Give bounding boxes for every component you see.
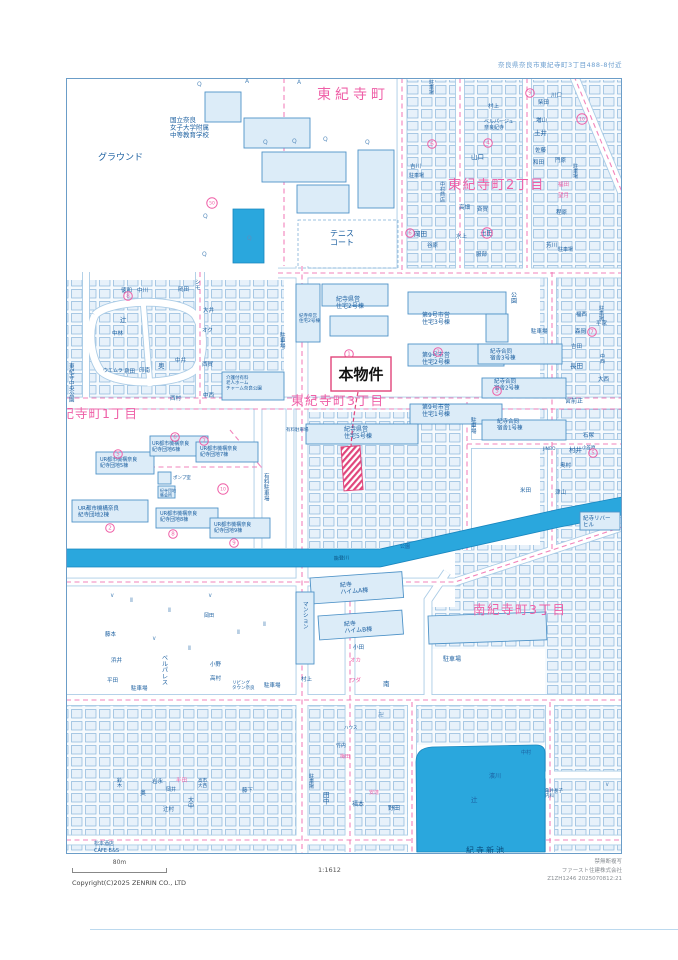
- map-label: 濱川: [489, 772, 501, 780]
- map-symbol: Q: [323, 136, 328, 143]
- map-label: 駐車場: [599, 305, 604, 322]
- map-label: 中村商店: [440, 181, 445, 203]
- map-label: 斉賀: [477, 205, 489, 213]
- map-label: 奥村: [560, 461, 572, 469]
- lot-number: 8: [171, 532, 175, 538]
- lot-number: 6: [430, 142, 434, 148]
- map-label: 柴田: [538, 98, 549, 106]
- map-label: 駐車場: [558, 246, 573, 253]
- map-label: 小野: [210, 660, 222, 668]
- housing-block: [412, 703, 545, 745]
- building: [486, 314, 508, 342]
- map-label: 岩永: [152, 777, 164, 785]
- lot-number: 9: [232, 541, 236, 547]
- map-label: 駐車場: [309, 773, 314, 790]
- housing-block: [545, 607, 622, 701]
- map-label: 半田: [176, 776, 187, 784]
- map-label: 駐車場: [443, 655, 461, 663]
- map-label: 竹内: [336, 742, 346, 749]
- map-label: 岡田: [178, 286, 189, 293]
- map-label: 土井: [534, 128, 548, 137]
- lot-number: 6: [173, 435, 177, 441]
- lot-number: 7: [202, 439, 206, 445]
- map-label: 駐車場: [131, 684, 148, 692]
- map-label: 岡田: [204, 613, 214, 619]
- map-label: 佐藤: [535, 146, 547, 154]
- map-label: 村井: [569, 445, 583, 454]
- map-label: 中林: [112, 329, 124, 337]
- scanned-map-page: 奈良県奈良市東紀寺町3丁目488-8付近 QAAQQQQQQQ∨∨∨∨ⅡⅡⅡⅡⅡ…: [0, 0, 678, 960]
- lot-number: 9: [528, 91, 532, 97]
- district-label: 東紀寺町: [317, 87, 389, 103]
- map-label: 中西: [600, 353, 605, 365]
- property-label: 本物件: [338, 366, 383, 384]
- map-symbol: Ⅱ: [188, 645, 191, 652]
- map-label: 水上: [456, 232, 468, 240]
- map-label: 西村: [170, 394, 182, 402]
- map-label: 駐車場: [531, 327, 548, 335]
- map-label: 長田: [570, 362, 583, 370]
- map-label: 南: [383, 679, 390, 688]
- map-label: 和田: [533, 158, 544, 166]
- map-label: 小田: [353, 643, 364, 651]
- map-label: ワダ: [350, 676, 362, 684]
- map-label: 辻村: [163, 805, 175, 813]
- map-label: 米田: [520, 486, 531, 494]
- map-symbol: 卍: [378, 712, 384, 719]
- map-label: 紀寺県営住宅5号棟: [344, 425, 372, 440]
- map-label: 岡井: [166, 786, 176, 793]
- building: [330, 316, 388, 336]
- map-label: 村上: [488, 102, 500, 110]
- map-label: 服部: [476, 250, 488, 258]
- map-label: 安達: [369, 789, 379, 796]
- lot-number: 8: [126, 294, 130, 300]
- map-label: 辻: [471, 795, 478, 804]
- lot-number: 3: [495, 389, 499, 395]
- map-symbol: ∨: [605, 781, 609, 788]
- map-label: ポンプ室: [173, 474, 191, 481]
- map-label: 野田: [388, 804, 400, 812]
- lot-number: 6: [408, 231, 412, 237]
- building: [205, 92, 241, 122]
- building: [296, 284, 320, 342]
- map-label: 梅田: [340, 753, 350, 760]
- district-label: 東紀寺町1丁目: [66, 406, 138, 421]
- map-label: 藤本: [105, 630, 117, 638]
- map-label: 松本酒店: [94, 840, 114, 847]
- lot-number: 7: [590, 330, 594, 336]
- zenrin-map-canvas: QAAQQQQQQQ∨∨∨∨ⅡⅡⅡⅡⅡ卍東紀寺町東紀寺町2丁目東紀寺町3丁目東紀…: [66, 78, 622, 854]
- map-symbol: Ⅱ: [263, 621, 266, 628]
- scale-bar-label: 80m: [113, 859, 126, 866]
- map-label: 第9号市営住宅3号棟: [422, 311, 450, 326]
- map-label: 西賀: [202, 360, 214, 368]
- map-label: 大西: [598, 375, 610, 383]
- property-site: [341, 446, 363, 491]
- map-label: マンション: [303, 601, 309, 630]
- map-label: 駐車場: [471, 416, 477, 435]
- map-symbol: ∨: [208, 592, 212, 599]
- lot-number: 11: [484, 231, 490, 237]
- map-symbol: ∨: [152, 635, 156, 642]
- map-symbol: Ⅱ: [237, 629, 240, 636]
- map-label: 有料駐車場: [264, 472, 270, 502]
- map-label: 藤下: [242, 786, 254, 794]
- scale-bar-rule: [72, 868, 167, 873]
- map-label: 大井: [203, 306, 215, 314]
- map-label: 駐車場: [280, 331, 286, 350]
- map-label: オク: [202, 327, 213, 334]
- map-symbol: Q: [263, 139, 268, 146]
- map-label: JINBO: [542, 446, 556, 452]
- map-label: シモ: [195, 280, 201, 292]
- map-symbol: Ⅱ: [168, 607, 171, 614]
- map-label: 奥: [140, 789, 146, 797]
- map-label: 高市大西: [198, 777, 207, 789]
- map-label: 紀寺県営住宅2号棟: [336, 295, 364, 310]
- map-symbol: Q: [247, 235, 252, 242]
- map-label: 平田: [107, 677, 118, 684]
- map-symbol: Q: [365, 139, 370, 146]
- map-scale-ratio: 1:1612: [318, 866, 341, 874]
- print-code: Z1ZH1246 2025070812:21: [547, 875, 622, 884]
- map-label: グラウンド: [98, 151, 143, 163]
- lot-number: 2: [108, 526, 112, 532]
- map-label: 福本: [352, 800, 364, 808]
- map-label: オカ: [350, 657, 361, 664]
- lot-number: 4: [486, 141, 490, 147]
- map-label: 駐車場: [573, 163, 578, 180]
- map-label: ベルパレス: [162, 655, 168, 686]
- map-content: QAAQQQQQQQ∨∨∨∨ⅡⅡⅡⅡⅡ卍東紀寺町東紀寺町2丁目東紀寺町3丁目東紀…: [66, 78, 622, 854]
- map-symbol: Q: [202, 251, 207, 258]
- lot-number: 5: [591, 451, 595, 457]
- scale-bar: 80m: [72, 860, 167, 873]
- map-frame: QAAQQQQQQQ∨∨∨∨ⅡⅡⅡⅡⅡ卍東紀寺町東紀寺町2丁目東紀寺町3丁目東紀…: [66, 78, 622, 854]
- scan-artifact-line: [90, 929, 678, 930]
- map-label: 岡田: [414, 230, 427, 238]
- lot-number: 10: [220, 487, 226, 493]
- map-label: 中西: [203, 391, 215, 399]
- map-symbol: Q: [203, 213, 208, 220]
- lot-number: 2: [436, 350, 440, 356]
- lot-number: 10: [579, 117, 585, 123]
- lot-number: 50: [209, 201, 215, 207]
- building: [262, 152, 346, 182]
- print-notice: 禁無断複写: [547, 858, 622, 867]
- district-label: 南紀寺町3丁目: [473, 602, 566, 617]
- building: [297, 185, 349, 213]
- map-label: 中井: [175, 356, 187, 364]
- map-label: テニスコート: [330, 229, 354, 247]
- building: [158, 472, 171, 484]
- map-label: 辻: [120, 315, 127, 324]
- print-company: ファースト住建株式会社: [547, 867, 622, 876]
- map-label: 村上: [301, 675, 313, 683]
- map-sheet-address: 奈良県奈良市東紀寺町3丁目488-8付近: [498, 59, 622, 69]
- map-label: 福田: [558, 180, 569, 188]
- map-label: 田中: [323, 791, 330, 806]
- map-label: 谷原: [427, 241, 439, 249]
- building: [482, 420, 566, 440]
- map-label: 駐車場: [264, 681, 281, 689]
- map-label: 望月: [558, 191, 569, 199]
- map-label: 鈴木: [117, 777, 122, 789]
- map-label: 大中: [188, 796, 194, 810]
- map-label: 津山: [555, 488, 566, 496]
- map-label: 奥: [158, 361, 165, 370]
- map-label: 増山: [536, 116, 547, 124]
- district-label: 東紀寺町3丁目: [291, 393, 384, 408]
- map-label: 中川: [137, 286, 148, 294]
- map-label: 程原: [556, 208, 568, 216]
- map-label: 能登川: [334, 554, 349, 562]
- map-label: 高村: [210, 674, 222, 682]
- map-label: 駐車場: [409, 172, 424, 179]
- map-symbol: Ⅱ: [130, 597, 133, 604]
- map-label: 公園: [511, 292, 517, 305]
- map-label: 泉田: [124, 367, 135, 375]
- map-label: 門原: [555, 157, 567, 164]
- map-label: 浜井: [111, 656, 123, 664]
- map-label: 駐車場: [429, 79, 434, 96]
- map-label: 山口: [471, 152, 484, 161]
- map-label: 有料駐車場: [286, 426, 309, 433]
- kidera-pond: [416, 745, 545, 852]
- map-label: 紀寺新池: [466, 845, 506, 854]
- building: [244, 118, 310, 148]
- map-label: 印南: [139, 366, 151, 374]
- map-label: 第9号市営住宅1号棟: [422, 403, 450, 418]
- print-info: 禁無断複写 ファースト住建株式会社 Z1ZH1246 2025070812:21: [547, 858, 622, 884]
- copyright-note: Copyright(C)2025 ZENRIN CO., LTD: [72, 879, 186, 887]
- map-label: 公園: [400, 544, 410, 550]
- map-label: ハウス: [344, 724, 358, 731]
- lot-number: 5: [116, 452, 120, 458]
- district-label: 東紀寺町2丁目: [448, 177, 545, 193]
- map-label: 川口: [551, 92, 562, 99]
- map-label: 宮前正: [565, 397, 583, 405]
- map-label: 東紀寺中央公園: [69, 362, 75, 404]
- map-symbol: ∨: [110, 592, 114, 599]
- map-label: 吉田: [571, 343, 582, 350]
- map-label: 中村: [521, 749, 531, 756]
- map-symbol: Q: [197, 81, 202, 88]
- map-label: 吉川: [410, 163, 421, 170]
- map-label: ウエムラ: [103, 367, 123, 374]
- map-label: 森岡: [575, 327, 587, 335]
- building: [408, 292, 506, 314]
- map-label: 福西: [576, 310, 588, 318]
- map-symbol: Q: [292, 138, 297, 145]
- map-label: 芳川: [546, 241, 557, 249]
- building: [358, 150, 394, 208]
- map-label: 高畑: [459, 203, 471, 211]
- map-label: 石塚: [583, 431, 595, 439]
